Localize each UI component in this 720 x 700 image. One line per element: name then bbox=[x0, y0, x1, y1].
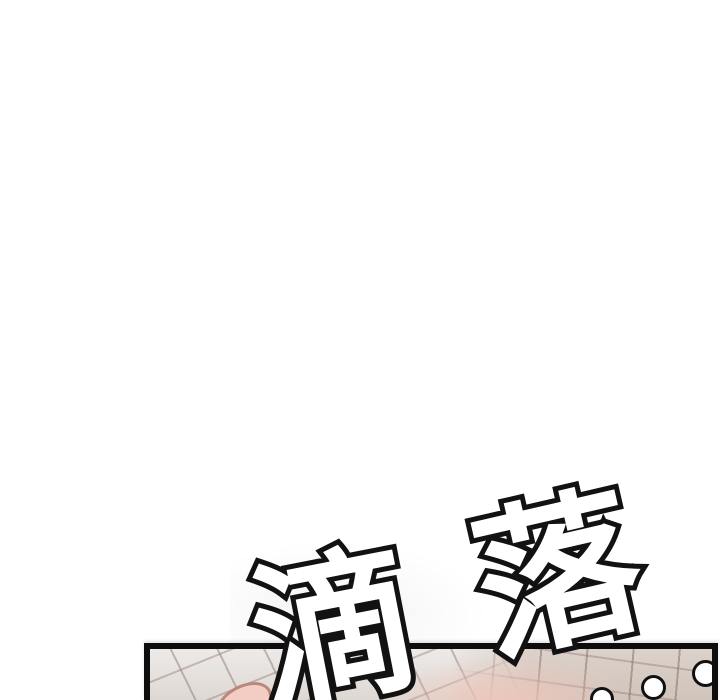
sfx-char-luo: 落 bbox=[462, 478, 662, 674]
ellipsis-dot-3 bbox=[692, 660, 718, 687]
ellipsis-dot-2 bbox=[641, 675, 666, 700]
sfx-char-di: 滴 bbox=[240, 536, 436, 700]
comic-page: 滴 落 bbox=[0, 0, 720, 700]
